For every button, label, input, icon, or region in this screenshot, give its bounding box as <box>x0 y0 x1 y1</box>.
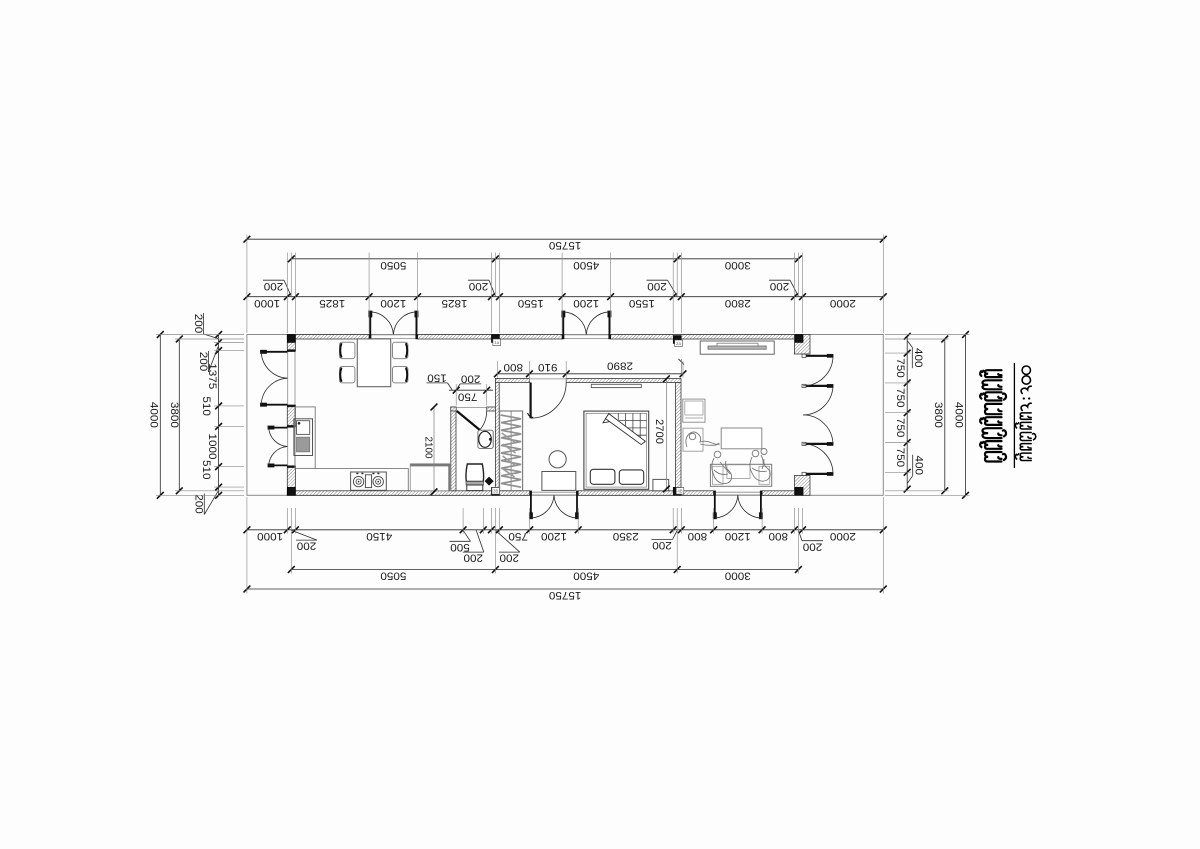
svg-text:1200: 1200 <box>380 297 406 309</box>
svg-text:800: 800 <box>503 361 523 373</box>
svg-text:200: 200 <box>461 372 481 384</box>
svg-text:1200: 1200 <box>725 530 751 542</box>
svg-text:4150: 4150 <box>366 530 392 542</box>
svg-text:800: 800 <box>688 530 708 542</box>
svg-text:750: 750 <box>458 391 478 403</box>
svg-text:3000: 3000 <box>725 259 751 271</box>
svg-text:200: 200 <box>499 552 519 564</box>
svg-text:2000: 2000 <box>830 530 856 542</box>
svg-text:4000: 4000 <box>148 402 160 428</box>
svg-text:1550: 1550 <box>629 297 655 309</box>
svg-text:1200: 1200 <box>573 297 599 309</box>
svg-text:200: 200 <box>193 494 205 514</box>
svg-text:400: 400 <box>912 348 924 368</box>
svg-text:1000: 1000 <box>206 434 218 460</box>
svg-text:200: 200 <box>652 539 672 551</box>
svg-text:200: 200 <box>647 280 667 292</box>
svg-text:200: 200 <box>803 540 823 552</box>
svg-text:4500: 4500 <box>573 259 599 271</box>
svg-text:2700: 2700 <box>653 419 665 444</box>
svg-text:4000: 4000 <box>953 402 965 428</box>
svg-text:750: 750 <box>894 418 906 438</box>
svg-text:1000: 1000 <box>254 297 280 309</box>
svg-text:5050: 5050 <box>380 570 406 582</box>
svg-text:200: 200 <box>197 352 209 372</box>
svg-text:750: 750 <box>894 358 906 378</box>
svg-text:400: 400 <box>912 455 924 475</box>
svg-text:1550: 1550 <box>518 297 544 309</box>
svg-text:910: 910 <box>538 361 558 373</box>
svg-text:1825: 1825 <box>319 297 345 309</box>
svg-text:200: 200 <box>770 280 790 292</box>
svg-text:1a: 1a <box>494 340 499 345</box>
svg-text:150: 150 <box>427 371 447 383</box>
svg-text:2100: 2100 <box>423 437 434 459</box>
svg-text:4B: 4B <box>677 489 682 494</box>
svg-text:750: 750 <box>508 530 528 542</box>
svg-text:3800: 3800 <box>168 402 180 428</box>
svg-text:1200: 1200 <box>541 530 567 542</box>
svg-text:200: 200 <box>469 280 489 292</box>
svg-text:750: 750 <box>894 448 906 468</box>
svg-text:200: 200 <box>264 280 284 292</box>
svg-text:1000: 1000 <box>257 530 283 542</box>
svg-text:2890: 2890 <box>607 360 633 372</box>
svg-text:2800: 2800 <box>725 297 751 309</box>
svg-text:200: 200 <box>192 314 204 334</box>
svg-text:200: 200 <box>463 552 483 564</box>
svg-text:2000: 2000 <box>830 297 856 309</box>
svg-text:15750: 15750 <box>549 589 582 601</box>
svg-text:500: 500 <box>450 541 470 553</box>
svg-text:3B: 3B <box>493 489 498 494</box>
svg-text:5050: 5050 <box>380 259 406 271</box>
svg-text:15750: 15750 <box>549 239 582 251</box>
svg-text:4500: 4500 <box>573 570 599 582</box>
svg-text:3800: 3800 <box>932 402 944 428</box>
svg-text:2350: 2350 <box>613 530 639 542</box>
svg-text:510: 510 <box>200 396 212 416</box>
svg-text:3000: 3000 <box>725 570 751 582</box>
svg-text:750: 750 <box>894 388 906 408</box>
svg-text:800: 800 <box>768 530 788 542</box>
svg-text:1825: 1825 <box>441 297 467 309</box>
svg-text:2a: 2a <box>676 341 681 346</box>
svg-text:510: 510 <box>200 460 212 480</box>
svg-text:200: 200 <box>297 540 317 552</box>
